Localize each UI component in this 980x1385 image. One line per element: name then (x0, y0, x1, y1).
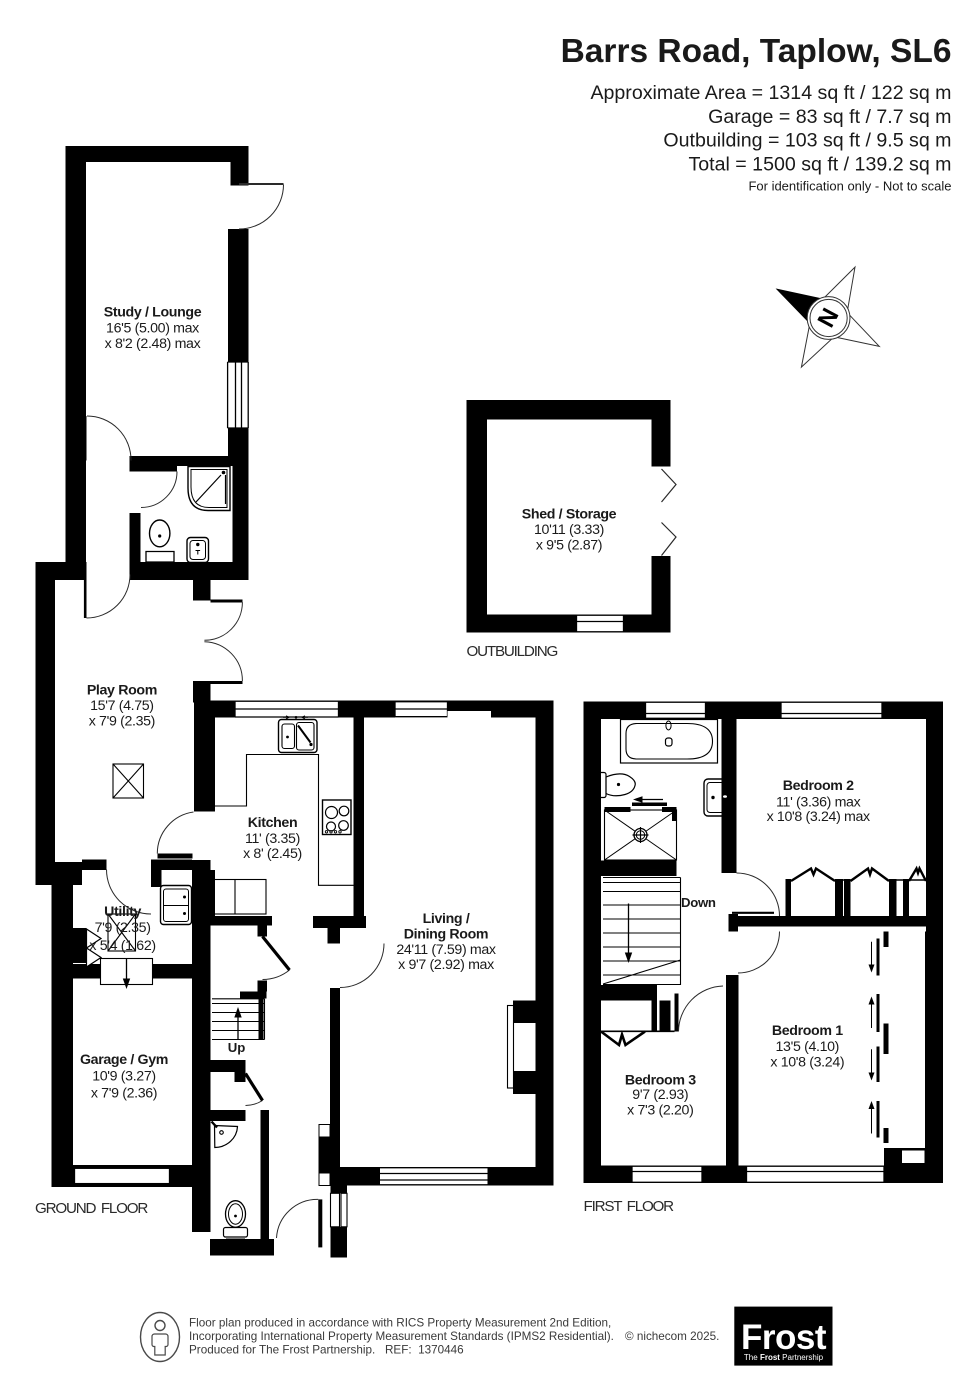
svg-text:Garage / Gym: Garage / Gym (80, 1052, 168, 1068)
svg-text:Bedroom 1: Bedroom 1 (772, 1023, 843, 1039)
svg-text:x 7'3 (2.20): x 7'3 (2.20) (627, 1102, 693, 1118)
svg-text:x 8' (2.45): x 8' (2.45) (243, 846, 302, 862)
svg-text:Study / Lounge: Study / Lounge (104, 305, 202, 321)
svg-text:24'11 (7.59) max: 24'11 (7.59) max (396, 942, 496, 958)
svg-text:11' (3.35): 11' (3.35) (245, 831, 300, 847)
svg-text:Barrs Road, Taplow, SL6: Barrs Road, Taplow, SL6 (561, 33, 952, 70)
svg-text:x 9'5 (2.87): x 9'5 (2.87) (536, 537, 602, 553)
svg-text:Kitchen: Kitchen (248, 815, 298, 831)
svg-text:© nichecom 2025.: © nichecom 2025. (625, 1330, 719, 1343)
svg-text:Utility: Utility (104, 904, 141, 920)
svg-text:Bedroom 2: Bedroom 2 (783, 778, 854, 794)
svg-text:x 8'2 (2.48) max: x 8'2 (2.48) max (105, 336, 201, 352)
svg-text:Incorporating International Pr: Incorporating International Property Mea… (189, 1330, 614, 1343)
svg-text:OUTBUILDING: OUTBUILDING (467, 643, 558, 660)
svg-text:13'5 (4.10): 13'5 (4.10) (776, 1039, 840, 1055)
svg-text:x 10'8 (3.24) max: x 10'8 (3.24) max (767, 809, 870, 825)
svg-text:7'9 (2.35): 7'9 (2.35) (95, 920, 151, 936)
svg-text:Floor plan produced in accorda: Floor plan produced in accordance with R… (189, 1317, 611, 1330)
svg-text:11' (3.36) max: 11' (3.36) max (776, 794, 861, 810)
svg-text:For identification only - Not: For identification only - Not to scale (748, 179, 951, 194)
svg-text:16'5 (5.00) max: 16'5 (5.00) max (106, 320, 199, 336)
svg-text:x 5'4 (1.62): x 5'4 (1.62) (89, 938, 155, 954)
svg-text:Dining Room: Dining Room (404, 927, 488, 943)
svg-text:Produced for The Frost Partner: Produced for The Frost Partnership. REF:… (189, 1344, 464, 1357)
svg-text:Frost: Frost (741, 1318, 827, 1357)
svg-text:10'11 (3.33): 10'11 (3.33) (534, 522, 604, 538)
svg-text:9'7 (2.93): 9'7 (2.93) (632, 1087, 688, 1103)
svg-text:FIRST FLOOR: FIRST FLOOR (584, 1198, 675, 1215)
svg-text:Shed / Storage: Shed / Storage (522, 507, 617, 523)
svg-text:GROUND FLOOR: GROUND FLOOR (35, 1200, 148, 1217)
svg-text:Total = 1500 sq ft / 139.2 sq: Total = 1500 sq ft / 139.2 sq m (688, 153, 951, 175)
svg-text:x 7'9 (2.35): x 7'9 (2.35) (89, 714, 155, 730)
svg-text:Garage = 83 sq ft / 7.7 sq m: Garage = 83 sq ft / 7.7 sq m (708, 106, 951, 128)
svg-text:15'7 (4.75): 15'7 (4.75) (90, 698, 154, 714)
svg-text:The Frost Partnership: The Frost Partnership (744, 1353, 824, 1362)
svg-text:Living /: Living / (423, 911, 470, 927)
svg-text:Up: Up (228, 1040, 246, 1055)
svg-text:x 7'9 (2.36): x 7'9 (2.36) (91, 1086, 157, 1102)
svg-text:10'9 (3.27): 10'9 (3.27) (92, 1069, 156, 1085)
svg-text:Play Room: Play Room (87, 683, 157, 699)
svg-text:Outbuilding = 103 sq ft / 9.5: Outbuilding = 103 sq ft / 9.5 sq m (663, 130, 951, 152)
svg-text:x 9'7 (2.92) max: x 9'7 (2.92) max (398, 957, 494, 973)
svg-text:Approximate Area = 1314 sq ft: Approximate Area = 1314 sq ft / 122 sq m (590, 82, 951, 104)
svg-text:x 10'8 (3.24): x 10'8 (3.24) (770, 1055, 844, 1071)
svg-text:Down: Down (681, 895, 716, 910)
